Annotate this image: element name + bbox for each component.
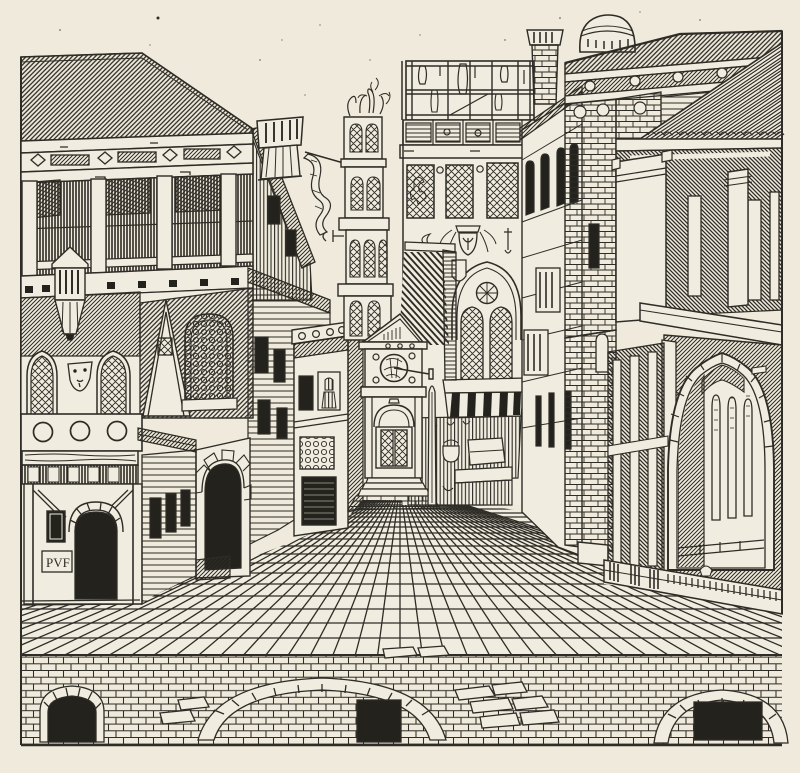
svg-text:PVF: PVF [46,555,70,570]
